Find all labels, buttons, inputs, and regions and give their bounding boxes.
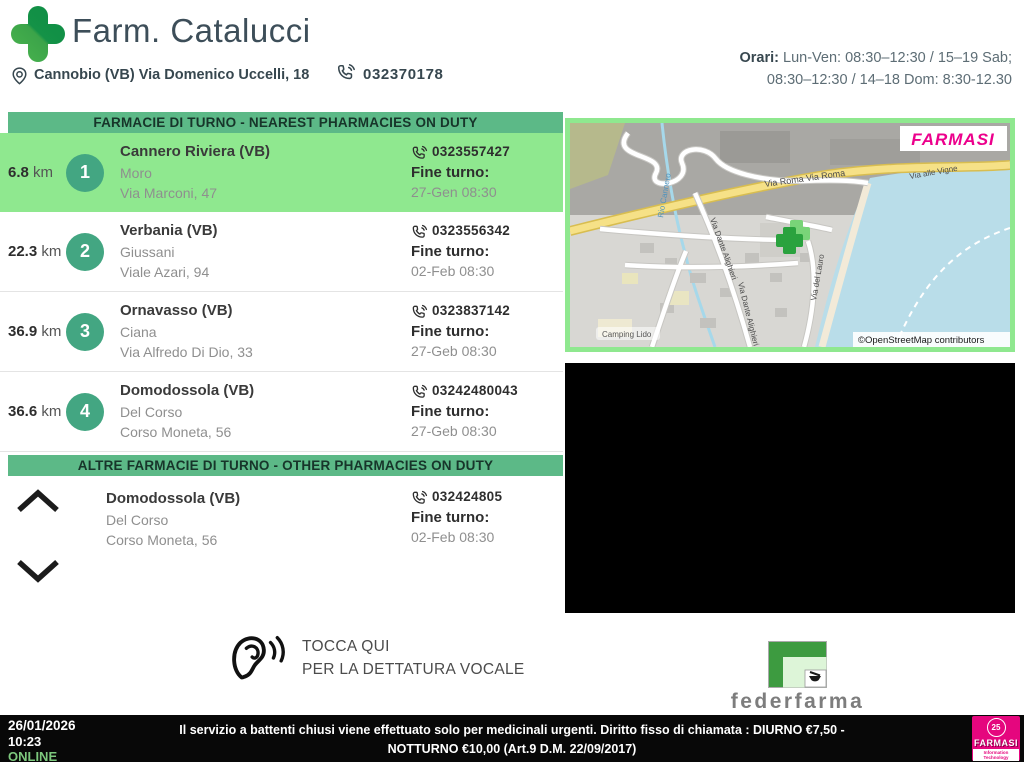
footer-datetime: 26/01/2026 10:23 ONLINE	[8, 718, 76, 765]
federfarma-logo: federfarma	[725, 641, 870, 714]
footer-service-message: Il servizio a battenti chiusi viene effe…	[152, 721, 872, 759]
phone-icon	[411, 304, 428, 321]
map-watermark: FARMASI	[911, 130, 995, 149]
opening-hours: Orari: Lun-Ven: 08:30–12:30 / 15–19 Sab;…	[702, 47, 1012, 92]
pharmacy-phone: 0323557427	[432, 143, 510, 162]
pharmacy-city: Cannero Riviera (VB)	[120, 141, 411, 163]
pharmacy-cross-logo	[10, 5, 66, 63]
fine-turno-date: 02-Feb 08:30	[411, 262, 563, 282]
pharmacy-name: Moro	[120, 163, 411, 183]
distance: 36.6 km	[0, 403, 66, 420]
phone-icon	[411, 490, 428, 507]
hours-line-2: 08:30–12:30 / 14–18 Dom: 8:30-12.30	[702, 69, 1012, 91]
pharmacy-street: Corso Moneta, 56	[120, 422, 411, 442]
media-panel	[565, 363, 1015, 613]
farmasi-logo: 25 FARMASI Information Technology	[972, 716, 1020, 761]
pharmacy-street: Corso Moneta, 56	[106, 530, 411, 550]
phone-icon	[411, 224, 428, 241]
phone-icon	[411, 384, 428, 401]
fine-turno-label: Fine turno:	[411, 321, 563, 342]
pharmacy-city: Domodossola (VB)	[106, 488, 411, 510]
federfarma-label: federfarma	[725, 690, 870, 714]
fine-turno-date: 27-Gen 08:30	[411, 183, 563, 203]
rank-badge: 1	[66, 154, 104, 192]
pharmacy-phone: 0323556342	[432, 222, 510, 241]
voice-dictation-button[interactable]: TOCCA QUI PER LA DETTATURA VOCALE	[228, 630, 525, 686]
pharmacy-row-4[interactable]: 36.6 km 4 Domodossola (VB) Del Corso Cor…	[0, 372, 563, 452]
distance: 22.3 km	[0, 243, 66, 260]
hours-line-1: Lun-Ven: 08:30–12:30 / 15–19 Sab;	[783, 50, 1012, 66]
ear-icon	[228, 630, 286, 686]
footer-date: 26/01/2026	[8, 718, 76, 734]
pharmacy-street: Via Marconi, 47	[120, 183, 411, 203]
fine-turno-label: Fine turno:	[411, 507, 563, 528]
voice-line-2: PER LA DETTATURA VOCALE	[302, 661, 525, 678]
page-title: Farm. Catalucci	[72, 12, 311, 50]
fine-turno-date: 27-Geb 08:30	[411, 342, 563, 362]
farmasi-logo-subtitle: Information Technology	[973, 749, 1019, 761]
map-attribution: ©OpenStreetMap contributors	[858, 335, 985, 346]
location-pin-icon	[10, 66, 29, 85]
pharmacy-name: Del Corso	[106, 510, 411, 530]
pharmacy-street: Via Alfredo Di Dio, 33	[120, 342, 411, 362]
pharmacy-address: Cannobio (VB) Via Domenico Uccelli, 18	[34, 67, 309, 83]
fine-turno-label: Fine turno:	[411, 162, 563, 183]
pharmacy-name: Del Corso	[120, 402, 411, 422]
online-status-badge: ONLINE	[8, 749, 76, 764]
fine-turno-date: 27-Geb 08:30	[411, 422, 563, 442]
pharmacy-row-1[interactable]: 6.8 km 1 Cannero Riviera (VB) Moro Via M…	[0, 133, 563, 212]
other-pharmacy-row[interactable]: Domodossola (VB) Del Corso Corso Moneta,…	[0, 476, 563, 594]
scroll-up-button[interactable]	[16, 488, 60, 514]
fine-turno-label: Fine turno:	[411, 401, 563, 422]
phone-icon	[336, 63, 356, 83]
farmasi-25-badge: 25	[987, 718, 1006, 737]
scroll-down-button[interactable]	[16, 558, 60, 584]
rank-badge: 3	[66, 313, 104, 351]
pharmacy-row-3[interactable]: 36.9 km 3 Ornavasso (VB) Ciana Via Alfre…	[0, 292, 563, 372]
map-poi-label: Camping Lido	[602, 330, 652, 339]
pharmacy-phone: 032370178	[363, 66, 443, 83]
rank-badge: 4	[66, 393, 104, 431]
distance: 36.9 km	[0, 323, 66, 340]
fine-turno-label: Fine turno:	[411, 241, 563, 262]
pharmacy-name: Giussani	[120, 242, 411, 262]
pharmacy-city: Verbania (VB)	[120, 220, 411, 242]
pharmacy-phone: 0323837142	[432, 302, 510, 321]
pharmacy-phone: 032424805	[432, 488, 502, 507]
footer-time: 10:23	[8, 734, 76, 749]
farmasi-logo-name: FARMASI	[972, 738, 1020, 748]
pharmacy-street: Viale Azari, 94	[120, 262, 411, 282]
voice-line-1: TOCCA QUI	[302, 638, 390, 655]
section-header-nearest: FARMACIE DI TURNO - NEAREST PHARMACIES O…	[8, 112, 563, 133]
map[interactable]: Via Roma Via Roma Via alle Vigne Via Dan…	[565, 118, 1015, 352]
pharmacy-row-2[interactable]: 22.3 km 2 Verbania (VB) Giussani Viale A…	[0, 212, 563, 292]
hours-label: Orari:	[739, 50, 779, 66]
distance: 6.8 km	[0, 164, 66, 181]
pharmacy-name: Ciana	[120, 322, 411, 342]
pharmacy-list: FARMACIE DI TURNO - NEAREST PHARMACIES O…	[0, 112, 563, 594]
pharmacy-phone: 03242480043	[432, 382, 518, 401]
phone-icon	[411, 145, 428, 162]
section-header-other: ALTRE FARMACIE DI TURNO - OTHER PHARMACI…	[8, 455, 563, 476]
fine-turno-date: 02-Feb 08:30	[411, 528, 563, 548]
pharmacy-city: Domodossola (VB)	[120, 380, 411, 402]
federfarma-mark	[768, 641, 828, 689]
pharmacy-city: Ornavasso (VB)	[120, 300, 411, 322]
rank-badge: 2	[66, 233, 104, 271]
